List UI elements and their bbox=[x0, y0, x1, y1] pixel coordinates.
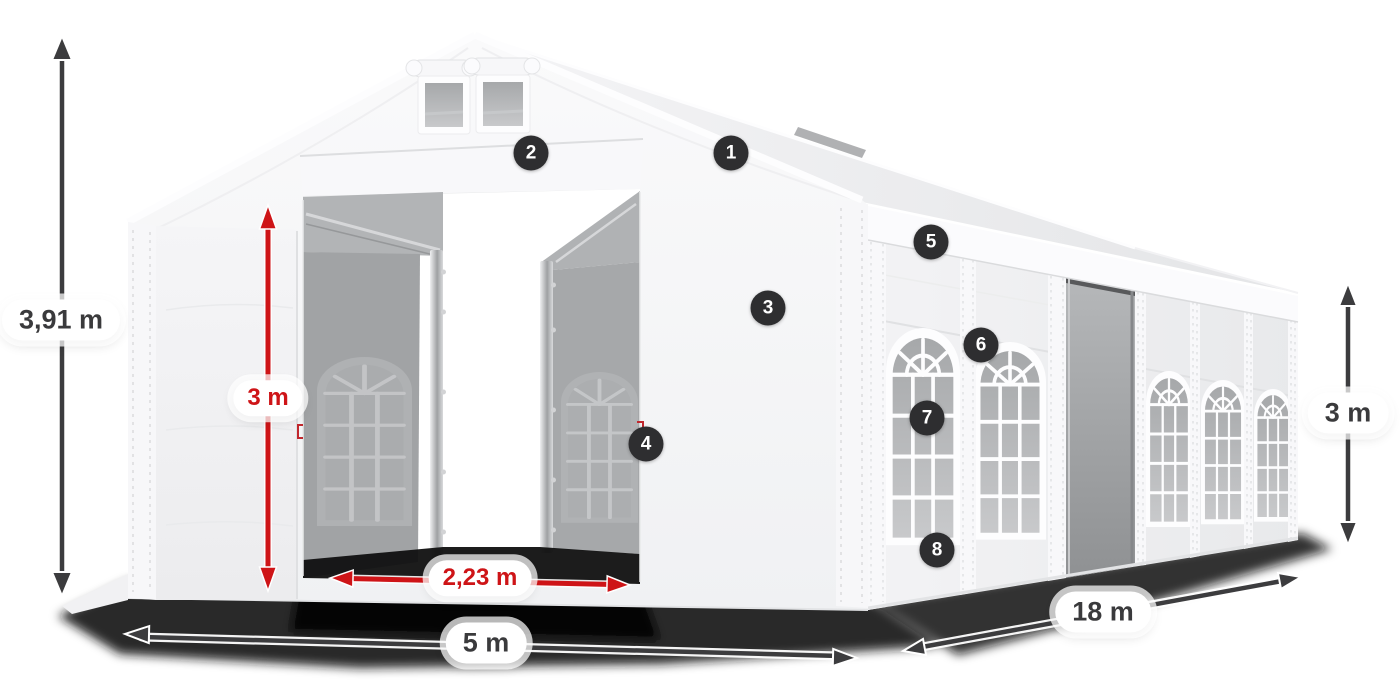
feature-marker-8[interactable]: 8 bbox=[920, 533, 955, 568]
side-window-2 bbox=[974, 342, 1046, 540]
door-pole-mid bbox=[540, 261, 553, 553]
dimension-label-length: 18 m bbox=[1055, 591, 1151, 632]
feature-marker-7[interactable]: 7 bbox=[910, 401, 945, 436]
door-pole-front bbox=[430, 250, 443, 560]
side-window-3 bbox=[1146, 371, 1192, 527]
feature-marker-2[interactable]: 2 bbox=[514, 136, 549, 171]
dimension-label-total-height: 3,91 m bbox=[2, 299, 120, 340]
feature-marker-4[interactable]: 4 bbox=[629, 427, 664, 462]
dimension-label-side-height: 3 m bbox=[1308, 392, 1389, 433]
tent-illustration bbox=[0, 0, 1400, 700]
dimension-label-entrance-height: 3 m bbox=[233, 380, 302, 416]
feature-marker-1[interactable]: 1 bbox=[714, 136, 749, 171]
dimension-label-width: 5 m bbox=[446, 622, 527, 663]
side-open-section bbox=[1066, 274, 1135, 578]
side-window-5 bbox=[1254, 389, 1292, 522]
feature-marker-5[interactable]: 5 bbox=[914, 225, 949, 260]
side-window-1 bbox=[886, 328, 960, 545]
entrance-interior bbox=[303, 189, 640, 584]
dimension-label-entrance-width: 2,23 m bbox=[429, 560, 532, 596]
feature-marker-3[interactable]: 3 bbox=[751, 291, 786, 326]
product-dimension-diagram: 3,91 m 3 m 2,23 m 5 m 18 m 3 m 1 2 3 4 5… bbox=[0, 0, 1400, 700]
feature-marker-6[interactable]: 6 bbox=[964, 328, 999, 363]
side-window-4 bbox=[1201, 380, 1245, 524]
